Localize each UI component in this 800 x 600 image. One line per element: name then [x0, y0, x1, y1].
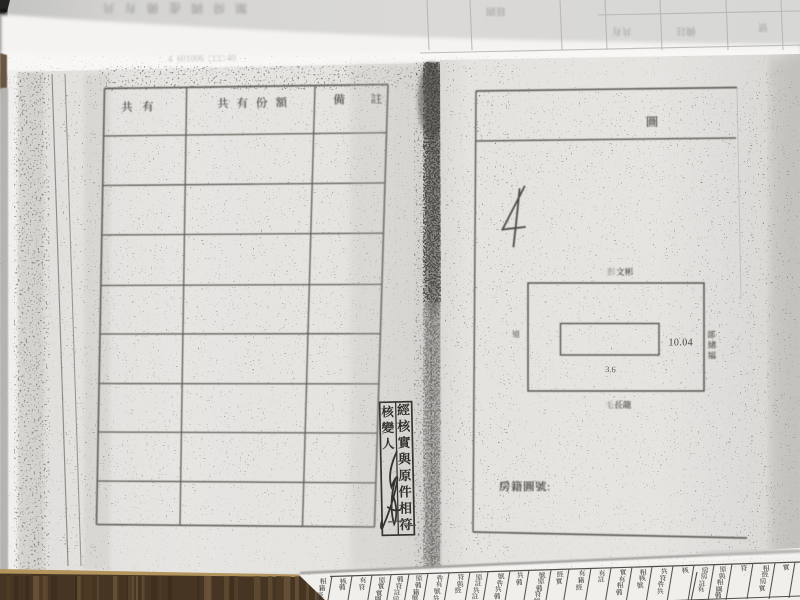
svg-text:產: 產	[169, 0, 181, 17]
svg-text:備: 備	[338, 581, 346, 592]
svg-text:備: 備	[615, 586, 623, 597]
svg-text:實: 實	[555, 575, 563, 586]
svg-text:備: 備	[515, 576, 523, 587]
svg-text:經: 經	[454, 584, 462, 595]
svg-text:房: 房	[213, 0, 225, 17]
svg-text:房: 房	[392, 593, 400, 600]
svg-text:實: 實	[758, 582, 766, 593]
svg-text:籍圖: 籍圖	[486, 5, 506, 20]
svg-text:實: 實	[315, 595, 323, 600]
svg-text:經: 經	[575, 581, 583, 592]
svg-text:有: 有	[697, 583, 705, 594]
svg-text:共: 共	[432, 592, 440, 600]
svg-text:共: 共	[102, 0, 115, 17]
svg-text:符: 符	[358, 581, 366, 592]
svg-text:額: 額	[235, 0, 247, 17]
svg-text:圖: 圖	[374, 593, 382, 600]
svg-text:號: 號	[533, 595, 541, 600]
svg-text:號: 號	[758, 21, 768, 36]
svg-text:有: 有	[125, 0, 137, 17]
svg-text:備: 備	[714, 589, 722, 600]
svg-text:號: 號	[636, 579, 644, 590]
svg-text:註: 註	[471, 590, 479, 600]
svg-text:備註: 備註	[676, 25, 697, 40]
svg-text:共: 共	[656, 585, 664, 596]
svg-text:共有: 共有	[612, 25, 632, 40]
svg-text:備: 備	[146, 0, 159, 17]
svg-text:備: 備	[493, 590, 501, 600]
svg-text:國: 國	[191, 0, 203, 17]
svg-text:號: 號	[411, 592, 419, 600]
